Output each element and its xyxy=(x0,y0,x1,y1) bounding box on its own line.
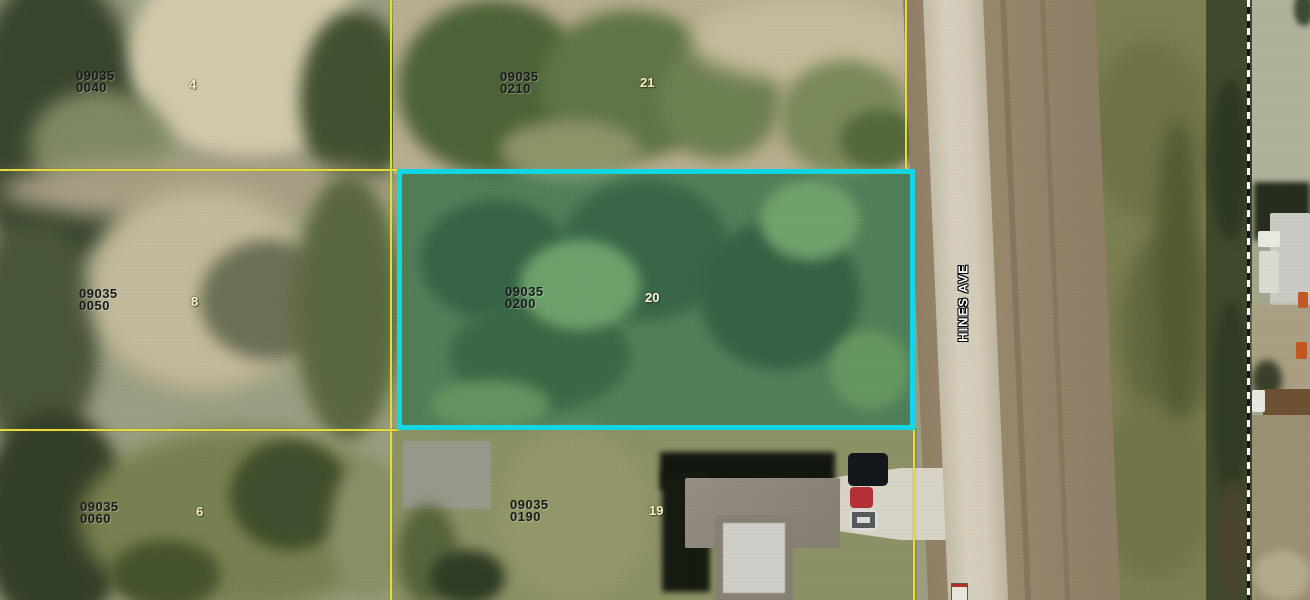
apn-line: 0190 xyxy=(510,511,549,523)
parcel-apn-label: 09035 0060 xyxy=(80,501,119,525)
brown-building-roof xyxy=(1263,389,1310,415)
industrial-ground-pale xyxy=(1252,0,1310,185)
parcel-apn-label-selected: 09035 0200 xyxy=(505,286,544,310)
white-trailer xyxy=(1259,251,1279,293)
parcel-apn-label: 09035 0210 xyxy=(500,71,539,95)
terrain-marsh-shadow xyxy=(1155,120,1200,420)
lot-number-label: 20 xyxy=(645,290,659,305)
industrial-light-patch xyxy=(1254,550,1310,600)
survey-boundary-line xyxy=(1247,0,1250,600)
aerial-map-canvas[interactable]: 09035 0040 4 09035 0210 21 09035 0050 8 … xyxy=(0,0,1310,600)
parcel-apn-label: 09035 0050 xyxy=(79,288,118,312)
white-truck xyxy=(1258,231,1280,247)
terrain-brush xyxy=(1210,80,1250,240)
white-truck xyxy=(1252,390,1265,412)
apn-line: 0060 xyxy=(80,513,119,525)
terrain-brush xyxy=(1215,480,1250,600)
road-sign xyxy=(951,583,968,600)
lot-number-label: 4 xyxy=(189,77,196,92)
apn-line: 0050 xyxy=(79,300,118,312)
apn-line: 0210 xyxy=(500,83,539,95)
lot-number-label: 21 xyxy=(640,75,654,90)
apn-line: 0200 xyxy=(505,298,544,310)
street-name-label: HINES AVE xyxy=(956,264,971,342)
apn-line: 0040 xyxy=(76,82,115,94)
lot-number-label: 6 xyxy=(196,504,203,519)
lot-number-label: 19 xyxy=(649,503,663,518)
parcel-apn-label: 09035 0190 xyxy=(510,499,549,523)
orange-equipment xyxy=(1298,292,1308,308)
orange-equipment xyxy=(1296,342,1307,359)
terrain-brush xyxy=(1212,300,1250,500)
parcel-apn-label: 09035 0040 xyxy=(76,70,115,94)
lot-number-label: 8 xyxy=(191,294,198,309)
